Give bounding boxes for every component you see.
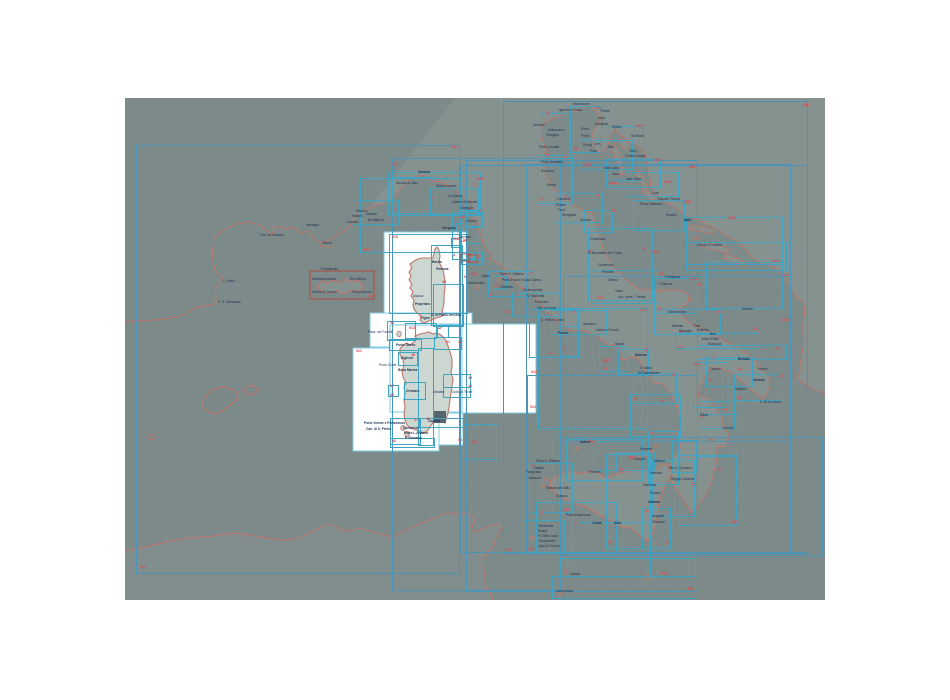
svg-text:Cala di Turchio: Cala di Turchio (538, 544, 560, 548)
svg-text:Siracusa: Siracusa (652, 520, 665, 524)
svg-text:Giglio: Giglio (481, 274, 490, 278)
svg-text:456: 456 (687, 587, 693, 591)
svg-text:Campobello: Campobello (538, 539, 556, 543)
svg-text:Cattolica: Cattolica (557, 197, 570, 201)
svg-text:Porto Conte: Porto Conte (379, 363, 397, 367)
svg-text:Brindisi: Brindisi (738, 357, 750, 361)
svg-text:Marsiglia: Marsiglia (306, 223, 319, 227)
svg-text:434: 434 (392, 162, 399, 166)
svg-text:Bari: Bari (710, 332, 716, 336)
svg-text:Montecristo: Montecristo (468, 281, 485, 285)
svg-text:43: 43 (468, 376, 472, 380)
svg-text:Porto Azzurro: Porto Azzurro (352, 290, 372, 294)
svg-text:Ortona: Ortona (608, 278, 618, 282)
svg-text:Oristano: Oristano (406, 389, 419, 393)
svg-text:Rio Marina: Rio Marina (350, 277, 366, 281)
svg-text:29: 29 (776, 346, 780, 350)
svg-text:Rijeka: Rijeka (612, 125, 621, 129)
svg-text:Cannes: Cannes (347, 220, 359, 224)
svg-text:Ravenna: Ravenna (541, 169, 554, 173)
svg-text:Gela: Gela (614, 521, 621, 525)
svg-text:18: 18 (539, 511, 543, 515)
svg-text:Favignana: Favignana (526, 470, 541, 474)
svg-text:Meleda: Meleda (742, 307, 753, 311)
svg-text:2: 2 (431, 196, 433, 200)
svg-text:22: 22 (645, 509, 649, 513)
svg-text:Tifa Rural: Tifa Rural (630, 134, 644, 138)
svg-text:Porto Empedocle: Porto Empedocle (566, 513, 591, 517)
svg-text:Civitanova: Civitanova (590, 237, 605, 241)
svg-text:Fiumicino: Fiumicino (535, 300, 549, 304)
svg-text:Prese Dalmand: Prese Dalmand (640, 202, 663, 206)
svg-text:6010: 6010 (781, 318, 789, 322)
svg-text:9: 9 (564, 347, 566, 351)
svg-text:Lignano e Grado: Lignano e Grado (558, 108, 582, 112)
svg-text:28: 28 (737, 396, 741, 400)
svg-text:Chioggia: Chioggia (546, 133, 559, 137)
svg-text:10: 10 (603, 367, 607, 371)
svg-text:Panarea: Panarea (640, 447, 652, 451)
svg-text:117: 117 (368, 294, 374, 298)
svg-text:Lido di Roma: Lido di Roma (537, 306, 556, 310)
svg-text:Genova: Genova (418, 170, 430, 174)
svg-text:1: 1 (394, 208, 396, 212)
svg-text:Fano: Fano (558, 208, 566, 212)
svg-text:6002: 6002 (583, 163, 591, 167)
svg-text:Savona e Vado: Savona e Vado (396, 181, 418, 185)
svg-text:Manfredonia: Manfredonia (668, 310, 686, 314)
svg-text:8: 8 (574, 310, 576, 314)
svg-text:Otranto: Otranto (753, 378, 765, 382)
svg-text:509: 509 (477, 177, 483, 181)
svg-text:438: 438 (803, 103, 809, 107)
svg-text:Venezia: Venezia (533, 123, 545, 127)
svg-text:6: 6 (490, 293, 492, 297)
svg-text:Messina: Messina (650, 471, 662, 475)
svg-text:913: 913 (506, 310, 512, 314)
svg-text:Zura: Zura (652, 191, 659, 195)
svg-text:918: 918 (731, 520, 737, 524)
svg-text:Carloforte: Carloforte (403, 426, 419, 430)
svg-text:Monfalcone: Monfalcone (573, 102, 590, 106)
svg-text:116: 116 (459, 215, 465, 219)
svg-text:Taormina: Taormina (643, 483, 657, 487)
svg-text:Pantelleria: Pantelleria (538, 524, 554, 528)
svg-text:107: 107 (602, 360, 608, 364)
svg-text:25: 25 (573, 147, 577, 151)
svg-text:P. Dietro Isola: P. Dietro Isola (538, 534, 558, 538)
svg-text:Bordighera: Bordighera (368, 218, 384, 222)
svg-text:S. Marinella: S. Marinella (527, 294, 544, 298)
svg-text:5: 5 (464, 275, 466, 279)
svg-text:C. S. Sebastian: C. S. Sebastian (218, 300, 241, 304)
svg-text:I. Pianosa: I. Pianosa (658, 282, 673, 286)
svg-text:Tolone: Tolone (322, 241, 332, 245)
svg-text:11: 11 (650, 431, 654, 435)
svg-text:Pola: Pola (590, 149, 597, 153)
svg-text:Malamocco: Malamocco (548, 128, 565, 132)
svg-text:Golfo di Terzili: Golfo di Terzili (452, 390, 473, 394)
svg-text:Sibari: Sibari (700, 413, 709, 417)
svg-text:113: 113 (471, 272, 477, 276)
svg-text:Portoferraio: Portoferraio (321, 267, 338, 271)
svg-text:Pianosa: Pianosa (436, 267, 449, 271)
svg-text:Ustica: Ustica (580, 440, 590, 444)
svg-text:Vasto: Vasto (615, 289, 623, 293)
svg-text:Porto Levante: Porto Levante (539, 145, 559, 149)
svg-text:32: 32 (657, 307, 661, 311)
svg-text:I. Pelagosa: I. Pelagosa (664, 275, 680, 279)
svg-text:0086: 0086 (683, 200, 691, 204)
svg-text:4432: 4432 (772, 259, 780, 263)
svg-text:di Castellabate: di Castellabate (638, 371, 660, 375)
svg-text:Cagliari: Cagliari (428, 419, 440, 423)
svg-text:Taranto: Taranto (710, 367, 721, 371)
svg-text:Tricase: Tricase (757, 367, 768, 371)
svg-text:Saracino: Saracino (583, 322, 596, 326)
svg-text:Foci del Rodano: Foci del Rodano (260, 233, 284, 237)
svg-text:26: 26 (596, 193, 600, 197)
svg-text:C. Creus: C. Creus (222, 279, 235, 283)
svg-text:Linosa: Linosa (570, 572, 580, 576)
svg-text:45: 45 (458, 438, 462, 442)
svg-text:17: 17 (390, 384, 394, 388)
svg-text:0087: 0087 (652, 250, 660, 254)
svg-text:P. Romano: P. Romano (405, 436, 422, 440)
svg-text:33: 33 (659, 272, 663, 276)
svg-text:42: 42 (458, 340, 462, 344)
svg-text:Split: Split (684, 218, 692, 222)
svg-text:Marciana Marina: Marciana Marina (312, 277, 336, 281)
svg-text:Marina di Carrara: Marina di Carrara (452, 200, 477, 204)
svg-text:911: 911 (356, 349, 362, 353)
svg-text:917: 917 (660, 571, 666, 575)
svg-text:26: 26 (709, 438, 713, 442)
svg-text:910: 910 (392, 235, 398, 239)
svg-text:912: 912 (409, 326, 415, 330)
svg-text:6001: 6001 (609, 181, 617, 185)
svg-text:45: 45 (390, 393, 394, 397)
svg-text:Sibenic: Sibenic (666, 213, 677, 217)
svg-text:Viareggio: Viareggio (460, 206, 474, 210)
svg-text:528: 528 (363, 248, 369, 252)
svg-text:35: 35 (611, 209, 615, 213)
svg-text:S. Felice Circeo: S. Felice Circeo (541, 318, 564, 322)
svg-text:Mazara del Vallo: Mazara del Vallo (546, 486, 570, 490)
svg-text:Bosa Marina: Bosa Marina (398, 368, 418, 372)
svg-text:49: 49 (390, 321, 394, 325)
svg-text:Reggio Calabria: Reggio Calabria (671, 477, 694, 481)
svg-text:Augusta: Augusta (652, 514, 664, 518)
svg-text:912: 912 (530, 405, 536, 409)
svg-text:439: 439 (528, 547, 534, 551)
svg-text:6003: 6003 (653, 158, 661, 162)
svg-text:20: 20 (608, 540, 612, 544)
svg-text:Senigallia: Senigallia (562, 213, 576, 217)
svg-text:28: 28 (779, 374, 783, 378)
svg-text:Milazzo: Milazzo (654, 459, 665, 463)
svg-text:432: 432 (451, 145, 457, 149)
svg-text:Cres: Cres (594, 142, 601, 146)
svg-text:Pass. dei Fornelli: Pass. dei Fornelli (368, 330, 393, 334)
svg-text:25: 25 (723, 408, 727, 412)
svg-text:522: 522 (597, 296, 603, 300)
svg-text:Porto S. Stefano: Porto S. Stefano (536, 459, 560, 463)
svg-text:Molfetta: Molfetta (697, 328, 709, 332)
svg-text:21: 21 (666, 540, 670, 544)
svg-text:Rab: Rab (608, 145, 614, 149)
svg-text:Canali di Curzola: Canali di Curzola (697, 243, 722, 247)
svg-text:Civitavecchia: Civitavecchia (523, 288, 542, 292)
svg-text:914: 914 (531, 370, 538, 374)
svg-text:Ponza: Ponza (558, 331, 568, 335)
svg-text:Catania: Catania (648, 500, 660, 504)
svg-text:5210: 5210 (690, 277, 698, 281)
svg-text:Salerno: Salerno (635, 353, 647, 357)
svg-text:Isole Vista: Isole Vista (626, 177, 641, 181)
svg-text:Sciacca: Sciacca (556, 494, 568, 498)
svg-text:434: 434 (689, 165, 696, 169)
svg-text:Orbetello: Orbetello (500, 285, 513, 289)
svg-text:Alghero: Alghero (401, 356, 413, 360)
svg-text:Porto Ercole e Cala Galera: Porto Ercole e Cala Galera (502, 278, 541, 282)
svg-text:Mali Losinj: Mali Losinj (604, 166, 620, 170)
svg-text:Gallipoli: Gallipoli (735, 387, 747, 391)
svg-text:Porto S. Stefano: Porto S. Stefano (500, 272, 524, 276)
svg-text:7: 7 (556, 311, 558, 315)
svg-text:7: 7 (515, 293, 517, 297)
svg-text:Porto Torres: Porto Torres (396, 343, 415, 347)
svg-text:Piran: Piran (581, 127, 589, 131)
svg-text:Livorno: Livorno (466, 219, 477, 223)
svg-text:4310: 4310 (782, 273, 790, 277)
svg-text:20: 20 (545, 153, 549, 157)
svg-text:Aiaccio: Aiaccio (413, 294, 424, 298)
svg-text:01: 01 (634, 397, 638, 401)
svg-text:Ancona: Ancona (580, 218, 591, 222)
svg-text:Lampedusa: Lampedusa (556, 589, 573, 593)
svg-text:Figari: Figari (421, 316, 430, 320)
svg-text:Trieste: Trieste (600, 109, 610, 113)
svg-text:Gaeta e Formia: Gaeta e Formia (596, 328, 619, 332)
svg-text:Palermo: Palermo (589, 470, 601, 474)
svg-text:115: 115 (618, 468, 624, 472)
svg-text:Pescara: Pescara (602, 270, 614, 274)
svg-text:Isola: Isola (598, 116, 605, 120)
svg-text:17: 17 (563, 155, 567, 159)
svg-text:S. Maria: S. Maria (640, 366, 652, 370)
svg-text:917: 917 (563, 508, 569, 512)
svg-text:19: 19 (573, 521, 577, 525)
svg-text:Licata: Licata (592, 521, 602, 525)
svg-text:Villa S. Giovanni: Villa S. Giovanni (668, 466, 692, 470)
svg-text:Senj: Senj (630, 149, 637, 153)
svg-text:5: 5 (530, 271, 532, 275)
svg-text:23: 23 (708, 378, 712, 382)
svg-text:G. di Porto-vecchio: G. di Porto-vecchio (431, 313, 461, 317)
svg-text:Ventim.: Ventim. (352, 214, 363, 218)
svg-text:Gorgona: Gorgona (442, 226, 456, 230)
svg-text:Porto Vesme e Portoscuso: Porto Vesme e Portoscuso (364, 421, 405, 425)
svg-text:22: 22 (692, 482, 696, 486)
svg-text:1: 1 (355, 199, 357, 203)
svg-text:914: 914 (640, 308, 647, 312)
svg-text:40: 40 (442, 280, 446, 284)
svg-text:Capraia: Capraia (459, 235, 471, 239)
svg-text:40: 40 (462, 239, 466, 243)
svg-text:415: 415 (506, 548, 512, 552)
svg-text:19: 19 (644, 348, 648, 352)
svg-text:Monopoli: Monopoli (708, 342, 721, 346)
svg-text:Porec: Porec (581, 134, 590, 138)
svg-text:La Spezia: La Spezia (448, 194, 463, 198)
svg-text:Sestri Levante: Sestri Levante (436, 184, 457, 188)
svg-text:Canale Palmari: Canale Palmari (658, 197, 680, 201)
svg-text:Crotone: Crotone (722, 426, 734, 430)
svg-text:46: 46 (392, 439, 396, 443)
svg-text:41: 41 (446, 340, 450, 344)
svg-text:Imperia: Imperia (366, 212, 377, 216)
svg-text:Propriano: Propriano (415, 302, 430, 306)
svg-text:432: 432 (140, 565, 146, 569)
svg-text:Rimini: Rimini (547, 183, 556, 187)
svg-text:Rovinj: Rovinj (583, 143, 592, 147)
svg-text:Anc. delle I. Tremiti: Anc. delle I. Tremiti (618, 295, 646, 299)
svg-text:Riposto: Riposto (650, 491, 661, 495)
svg-text:Scauri: Scauri (538, 529, 547, 533)
svg-text:919: 919 (694, 362, 700, 366)
svg-text:6301: 6301 (636, 124, 644, 128)
svg-text:410: 410 (678, 345, 684, 349)
svg-text:Vulcano: Vulcano (634, 457, 646, 461)
svg-text:Punta e Drago: Punta e Drago (625, 154, 646, 158)
svg-text:13: 13 (671, 373, 675, 377)
svg-text:Barletta: Barletta (672, 324, 683, 328)
svg-text:Marsala: Marsala (529, 476, 541, 480)
svg-text:26: 26 (737, 367, 741, 371)
svg-text:17: 17 (540, 197, 544, 201)
svg-text:Napoli: Napoli (615, 342, 624, 346)
svg-text:S. Benedetto del Tronto: S. Benedetto del Tronto (588, 251, 622, 255)
svg-text:Arbatax: Arbatax (433, 390, 445, 394)
svg-text:0088: 0088 (727, 216, 735, 220)
svg-text:02: 02 (697, 283, 701, 287)
svg-text:3: 3 (474, 183, 476, 187)
svg-text:8: 8 (550, 351, 552, 355)
svg-text:Marina di Campo: Marina di Campo (312, 290, 337, 294)
svg-text:Pesaro: Pesaro (556, 203, 566, 207)
svg-text:27: 27 (711, 356, 715, 360)
svg-text:118: 118 (471, 440, 477, 444)
svg-text:Can. di S. Pietro: Can. di S. Pietro (366, 427, 391, 431)
svg-text:S. M. di Leuca: S. M. di Leuca (760, 400, 781, 404)
svg-text:Giulianova: Giulianova (598, 263, 614, 267)
svg-text:Bisceglie: Bisceglie (679, 329, 692, 333)
svg-text:47: 47 (414, 418, 418, 422)
svg-text:30: 30 (753, 327, 757, 331)
svg-text:Mola di Bari: Mola di Bari (702, 337, 719, 341)
svg-text:Bastia: Bastia (432, 260, 442, 264)
svg-text:Novigrad: Novigrad (595, 122, 608, 126)
svg-text:0084: 0084 (664, 180, 673, 184)
svg-text:Porto L.Antioco: Porto L.Antioco (404, 431, 428, 435)
svg-text:Zara: Zara (612, 172, 619, 176)
svg-text:Porto Garibaldi: Porto Garibaldi (541, 160, 563, 164)
